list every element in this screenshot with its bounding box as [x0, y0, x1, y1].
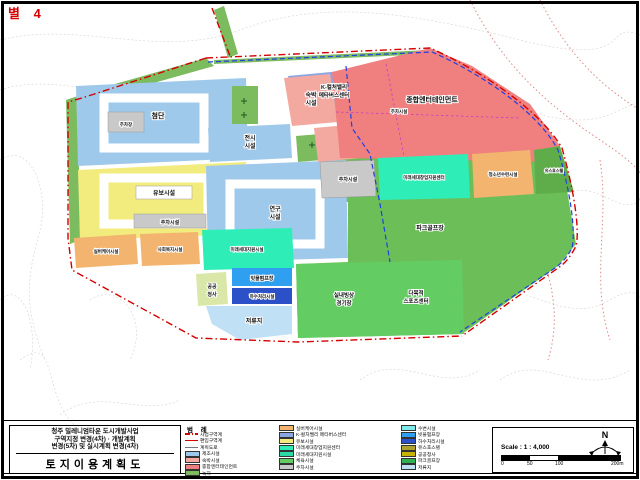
legend-column-1: 사업구역계 편입구역계 계획도로 제조시설 숙박시설 종합엔터테인먼트 녹지: [185, 431, 277, 477]
label-sports-park: 파크골프장: [416, 224, 444, 232]
zone-entertainment: [332, 48, 560, 162]
label-exhibition-1: 전시: [244, 134, 255, 142]
tick-label: 200m: [611, 461, 624, 467]
zone-lodging: [284, 74, 338, 126]
legend-label: 주차시설: [296, 464, 314, 471]
zone-exhibition: [208, 124, 292, 162]
color-swatch: [279, 464, 294, 470]
legend-item: 사업구역계: [185, 431, 277, 437]
project-line2: 구역지정 변경(4차) · 개발계획: [10, 436, 180, 444]
label-sports-center-2: 스포츠센터: [403, 297, 428, 305]
label-youth: 청소년수련시설: [489, 171, 518, 178]
label-sports-center-1: 다목적: [408, 289, 423, 297]
label-research-1: 연구: [269, 205, 281, 213]
north-label: N: [587, 430, 623, 440]
label-parking-k: 주차시설: [391, 108, 408, 115]
legend-column-2: 실버케어시설 K-컬처밸리 메타버스센터 유보시설 미래세대창업지원센터 미래세…: [279, 425, 399, 471]
color-swatch: [279, 438, 294, 444]
legend-item: 파크골프장: [401, 458, 486, 464]
label-mfg: 첨단: [152, 111, 165, 120]
legend: 범 례 사업구역계 편입구역계 계획도로 제조시설 숙박시설 종합엔터테인먼트 …: [183, 424, 486, 473]
legend-item: 하수처리시설: [401, 438, 486, 444]
legend-item: 공공청사: [401, 451, 486, 457]
color-swatch: [279, 432, 294, 438]
project-line1: 청주 밀레니엄타운 도시개발사업: [10, 428, 180, 436]
landuse-map: 첨단 주차장 유보시설 주차시설 K-컬처밸리 메타버스센터 주차시설 전시 시…: [0, 0, 640, 480]
color-swatch: [185, 464, 200, 470]
label-future-support: 미래세대지원시설: [230, 246, 263, 253]
legend-item: 종합엔터테인먼트: [185, 464, 277, 470]
strip-divider-top: [4, 420, 636, 421]
scale-box: N Scale : 1 : 4,000 0 50 100 200m: [492, 427, 634, 473]
scale-seg: [530, 456, 558, 460]
label-silver2: 사회복지시설: [158, 246, 183, 253]
label-cityhall-2: 청사: [207, 291, 217, 298]
label-future-center: 미래세대창업지원센터: [403, 174, 444, 181]
label-ice-rink-1: 실내빙상: [334, 291, 354, 299]
landuse-plan-page: 첨단 주차장 유보시설 주차시설 K-컬처밸리 메타버스센터 주차시설 전시 시…: [0, 0, 640, 480]
label-lodging-2: 시설: [305, 99, 317, 107]
color-swatch: [185, 470, 200, 476]
label-pump-sewage: 하수처리시설: [250, 293, 275, 300]
legend-label: 녹지: [202, 470, 211, 477]
label-lodging-1: 숙박: [305, 91, 317, 99]
label-exhibition-2: 시설: [244, 142, 256, 150]
legend-item: 편입구역계: [185, 438, 277, 444]
tick-label: 50: [527, 461, 533, 467]
scale-text: Scale : 1 : 4,000: [501, 444, 549, 451]
color-swatch: [185, 451, 200, 457]
label-hostel: 유스호스텔: [545, 167, 564, 173]
legend-item: 저류지: [401, 464, 486, 470]
label-pump-rain: 빗물펌프장: [250, 275, 273, 282]
title-block: 청주 밀레니엄타운 도시개발사업 구역지정 변경(4차) · 개발계획 변경(5…: [9, 425, 181, 474]
color-swatch: [401, 451, 416, 457]
label-entertainment: 종합엔터테인먼트: [406, 95, 458, 104]
label-reserve: 유보시설: [153, 189, 176, 197]
color-swatch: [279, 425, 294, 431]
label-parking-reserve: 주차시설: [161, 219, 180, 226]
zone-indoor-sports: [296, 260, 464, 338]
scale-seg: [502, 456, 530, 460]
label-kvalley-1: K-컬처밸리: [321, 83, 347, 91]
label-cityhall-1: 공공: [207, 283, 217, 290]
label-research-2: 시설: [269, 213, 281, 221]
revision-stamp: 별 4: [8, 3, 46, 22]
tick-label: 0: [501, 461, 504, 467]
color-swatch: [185, 457, 200, 463]
color-swatch: [401, 458, 416, 464]
boundary-dashdot-symbol: [185, 433, 198, 434]
label-parking-top: 주차장: [120, 121, 133, 128]
legend-item: 수변시설: [401, 425, 486, 431]
project-line3: 변경(5차) 및 실시계획 변경(4차): [10, 443, 180, 451]
north-arrow: N: [587, 430, 623, 456]
legend-column-3: 수변시설 빗물펌프장 하수처리시설 유스호스텔 공공청사 파크골프장 저류지: [401, 425, 486, 471]
color-swatch: [401, 425, 416, 431]
label-basin: 저류지: [246, 317, 263, 325]
legend-label: 저류지: [418, 464, 431, 471]
label-kvalley-2: 메타버스센터: [319, 91, 349, 99]
color-swatch: [401, 438, 416, 444]
color-swatch: [279, 445, 294, 451]
north-arrow-icon: [587, 440, 623, 456]
color-swatch: [279, 451, 294, 457]
road-line-symbol: [185, 447, 198, 448]
label-silver1: 실버케어시설: [94, 248, 119, 255]
color-swatch: [401, 432, 416, 438]
scale-seg: [558, 456, 620, 460]
label-parking-mid: 주차시설: [339, 176, 358, 183]
legend-item: 유스호스텔: [401, 445, 486, 451]
legend-item: 계획도로: [185, 444, 277, 450]
drawing-title: 토지이용계획도: [16, 453, 174, 472]
color-swatch: [401, 464, 416, 470]
label-ice-rink-2: 경기장: [336, 299, 351, 307]
color-swatch: [279, 458, 294, 464]
color-swatch: [401, 445, 416, 451]
legend-item: 제조시설: [185, 451, 277, 457]
boundary-line-symbol: [185, 440, 198, 441]
tick-label: 100: [555, 461, 563, 467]
legend-item: 녹지: [185, 470, 277, 476]
legend-item: 주차시설: [279, 464, 399, 470]
